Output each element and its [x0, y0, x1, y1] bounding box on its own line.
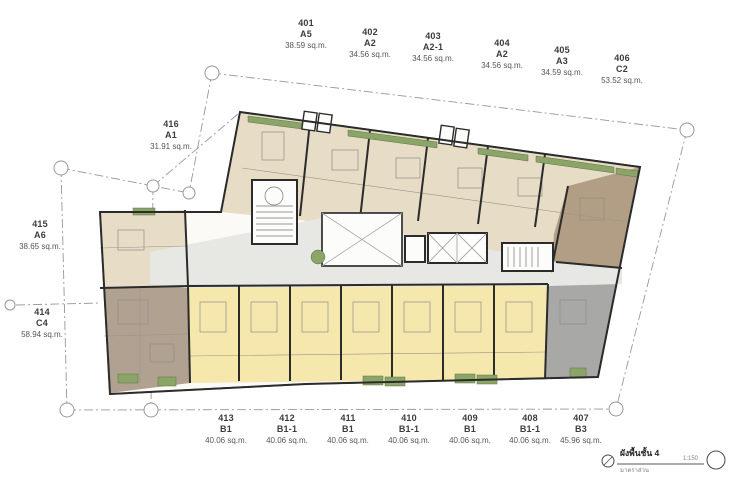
unit-area: 34.56 sq.m.	[481, 60, 523, 71]
title-block-scale: 1:150	[683, 456, 698, 462]
unit-type: A3	[541, 56, 583, 67]
unit-label-406: 406 C2 53.52 sq.m.	[601, 53, 643, 86]
unit-number: 403	[412, 31, 454, 42]
unit-number: 406	[601, 53, 643, 64]
unit-label-409: 409 B1 40.06 sq.m.	[449, 413, 491, 446]
unit-area: 38.59 sq.m.	[285, 40, 327, 51]
unit-type: B1-1	[388, 424, 430, 435]
unit-number: 402	[349, 27, 391, 38]
unit-number: 409	[449, 413, 491, 424]
unit-type: A2-1	[412, 42, 454, 53]
unit-type: B1	[327, 424, 369, 435]
unit-area: 40.06 sq.m.	[449, 435, 491, 446]
unit-type: B1-1	[266, 424, 308, 435]
unit-label-412: 412 B1-1 40.06 sq.m.	[266, 413, 308, 446]
unit-area: 38.65 sq.m.	[19, 241, 61, 252]
unit-type: A2	[481, 49, 523, 60]
unit-label-411: 411 B1 40.06 sq.m.	[327, 413, 369, 446]
unit-number: 405	[541, 45, 583, 56]
unit-area: 34.56 sq.m.	[412, 53, 454, 64]
unit-label-401: 401 A5 38.59 sq.m.	[285, 18, 327, 51]
unit-type: B1	[205, 424, 247, 435]
unit-type: A2	[349, 38, 391, 49]
floor-plan-page: 401 A5 38.59 sq.m. 402 A2 34.56 sq.m. 40…	[0, 0, 750, 500]
title-block-subtitle: มาตราส่วน	[620, 465, 649, 475]
unit-label-407: 407 B3 45.96 sq.m.	[560, 413, 602, 446]
unit-area: 40.06 sq.m.	[205, 435, 247, 446]
title-block-title: ผังพื้นชั้น 4	[620, 446, 659, 460]
unit-area: 31.91 sq.m.	[150, 141, 192, 152]
unit-number: 413	[205, 413, 247, 424]
unit-area: 40.06 sq.m.	[327, 435, 369, 446]
unit-type: B3	[560, 424, 602, 435]
unit-type: A6	[19, 230, 61, 241]
unit-label-413: 413 B1 40.06 sq.m.	[205, 413, 247, 446]
unit-area: 45.96 sq.m.	[560, 435, 602, 446]
unit-label-402: 402 A2 34.56 sq.m.	[349, 27, 391, 60]
unit-number: 407	[560, 413, 602, 424]
unit-number: 411	[327, 413, 369, 424]
unit-label-408: 408 B1-1 40.06 sq.m.	[509, 413, 551, 446]
unit-area: 40.06 sq.m.	[509, 435, 551, 446]
unit-area: 34.56 sq.m.	[349, 49, 391, 60]
unit-label-410: 410 B1-1 40.06 sq.m.	[388, 413, 430, 446]
unit-type: B1-1	[509, 424, 551, 435]
unit-number: 401	[285, 18, 327, 29]
unit-number: 415	[19, 219, 61, 230]
unit-label-404: 404 A2 34.56 sq.m.	[481, 38, 523, 71]
unit-number: 414	[21, 307, 63, 318]
unit-number: 412	[266, 413, 308, 424]
unit-type: A1	[150, 130, 192, 141]
unit-area: 40.06 sq.m.	[266, 435, 308, 446]
unit-type: A5	[285, 29, 327, 40]
unit-label-403: 403 A2-1 34.56 sq.m.	[412, 31, 454, 64]
unit-type: B1	[449, 424, 491, 435]
unit-label-416: 416 A1 31.91 sq.m.	[150, 119, 192, 152]
unit-number: 408	[509, 413, 551, 424]
unit-area: 40.06 sq.m.	[388, 435, 430, 446]
unit-label-414: 414 C4 58.94 sq.m.	[21, 307, 63, 340]
unit-number: 404	[481, 38, 523, 49]
unit-type: C2	[601, 64, 643, 75]
unit-area: 53.52 sq.m.	[601, 75, 643, 86]
unit-label-415: 415 A6 38.65 sq.m.	[19, 219, 61, 252]
unit-label-405: 405 A3 34.59 sq.m.	[541, 45, 583, 78]
unit-area: 58.94 sq.m.	[21, 329, 63, 340]
unit-area: 34.59 sq.m.	[541, 67, 583, 78]
unit-number: 410	[388, 413, 430, 424]
unit-number: 416	[150, 119, 192, 130]
unit-type: C4	[21, 318, 63, 329]
unit-labels-layer: 401 A5 38.59 sq.m. 402 A2 34.56 sq.m. 40…	[0, 0, 750, 500]
